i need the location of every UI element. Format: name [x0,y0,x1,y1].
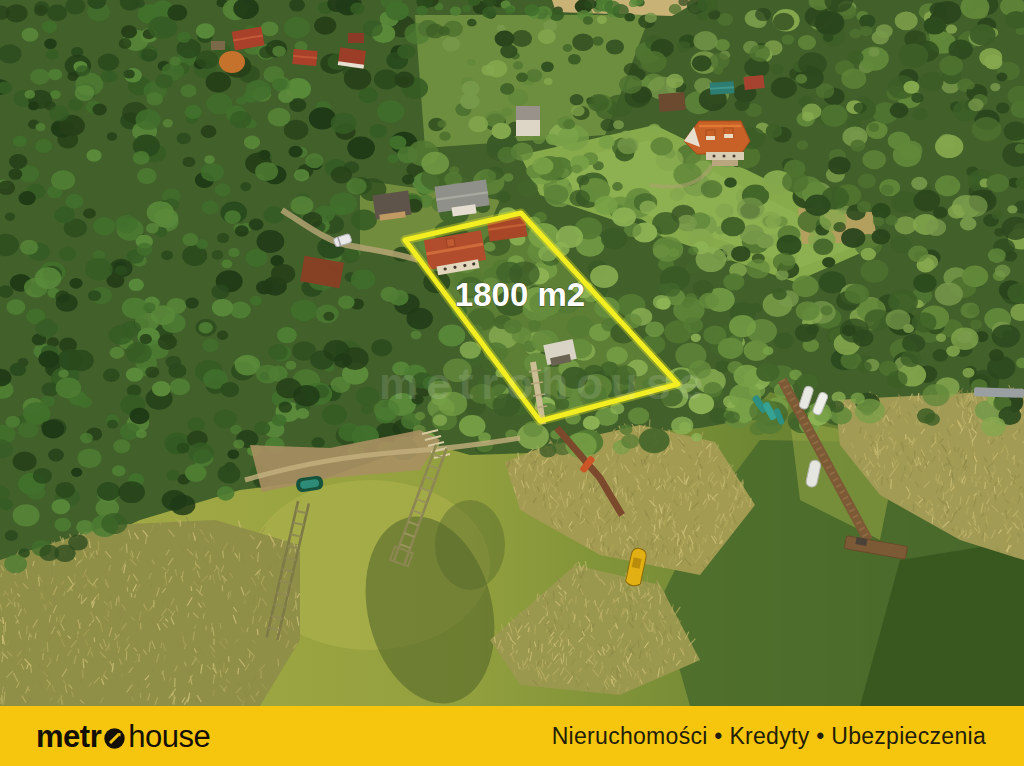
logo-text-bold: metr [36,721,101,752]
teal-shed [710,81,735,95]
listing-image: 1800 m2 metrohouse metr house Nieruchomo… [0,0,1024,766]
white-house-small [516,106,540,136]
branding-bar: metr house Nieruchomości • Kredyty • Ube… [0,706,1024,766]
plot-area-label: 1800 m2 [455,276,585,313]
logo-text-light: house [128,721,210,752]
watermark: metrohouse [379,359,711,408]
services-text: Nieruchomości • Kredyty • Ubezpieczenia [552,723,986,750]
aerial-photo: 1800 m2 metrohouse [0,0,1024,706]
circle-arrow-icon [102,725,127,750]
gray-dock-right [974,387,1024,398]
autumn-tree [219,51,245,73]
metrohouse-logo: metr house [36,721,210,752]
